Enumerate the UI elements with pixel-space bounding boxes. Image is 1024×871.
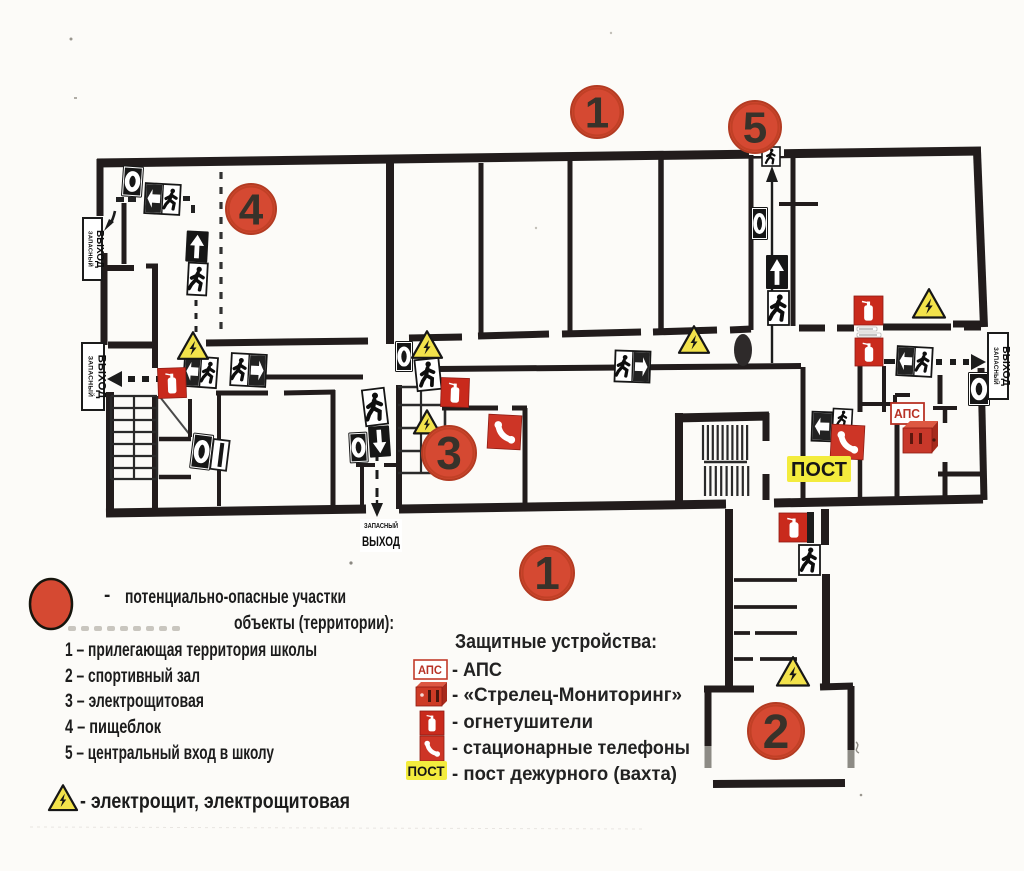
svg-text:ЗАПАСНЫЙ: ЗАПАСНЫЙ xyxy=(364,521,398,530)
svg-text:ПОСТ: ПОСТ xyxy=(791,459,847,481)
svg-text:ВЫХОД: ВЫХОД xyxy=(362,534,400,549)
svg-text:- «Стрелец-Мониторинг»: - «Стрелец-Мониторинг» xyxy=(452,685,682,706)
svg-text:- огнетушители: - огнетушители xyxy=(452,712,593,733)
svg-text:2: 2 xyxy=(763,706,790,759)
svg-text:АПС: АПС xyxy=(418,663,442,677)
svg-text:ВЫХОД: ВЫХОД xyxy=(94,230,105,268)
svg-text:АПС: АПС xyxy=(894,406,921,421)
svg-text:-: - xyxy=(104,585,110,606)
svg-text:- стационарные телефоны: - стационарные телефоны xyxy=(452,738,690,759)
svg-text:2 – спортивный зал: 2 – спортивный зал xyxy=(65,666,200,687)
svg-text:объекты (территории):: объекты (территории): xyxy=(234,613,394,634)
svg-text:4 – пищеблок: 4 – пищеблок xyxy=(65,717,161,738)
svg-text:3 – электрощитовая: 3 – электрощитовая xyxy=(65,691,204,712)
svg-text:4: 4 xyxy=(239,185,264,234)
svg-text:потенциально-опасные участки: потенциально-опасные участки xyxy=(125,587,346,608)
svg-text:ВЫХОД: ВЫХОД xyxy=(95,355,107,399)
svg-text:1: 1 xyxy=(534,547,560,599)
svg-text:ВЫХОД: ВЫХОД xyxy=(1000,346,1011,386)
svg-text:Защитные устройства:: Защитные устройства: xyxy=(455,631,657,653)
svg-text:ПОСТ: ПОСТ xyxy=(408,763,445,779)
svg-text:ЗАПАСНЫЙ: ЗАПАСНЫЙ xyxy=(87,231,95,267)
svg-text:5 – центральный вход в школу: 5 – центральный вход в школу xyxy=(65,743,274,764)
svg-text:ЗАПАСНЫЙ: ЗАПАСНЫЙ xyxy=(992,347,1000,385)
svg-text:1: 1 xyxy=(585,88,609,137)
svg-text:3: 3 xyxy=(436,427,462,479)
svg-text:5: 5 xyxy=(743,103,767,152)
svg-text:- электрощит, электрощитовая: - электрощит, электрощитовая xyxy=(80,790,350,813)
svg-text:ЗАПАСНЫЙ: ЗАПАСНЫЙ xyxy=(87,356,96,397)
svg-text:- пост дежурного (вахта): - пост дежурного (вахта) xyxy=(452,764,677,785)
svg-text:- АПС: - АПС xyxy=(452,660,502,681)
svg-text:1 – прилегающая территория шко: 1 – прилегающая территория школы xyxy=(65,640,317,661)
